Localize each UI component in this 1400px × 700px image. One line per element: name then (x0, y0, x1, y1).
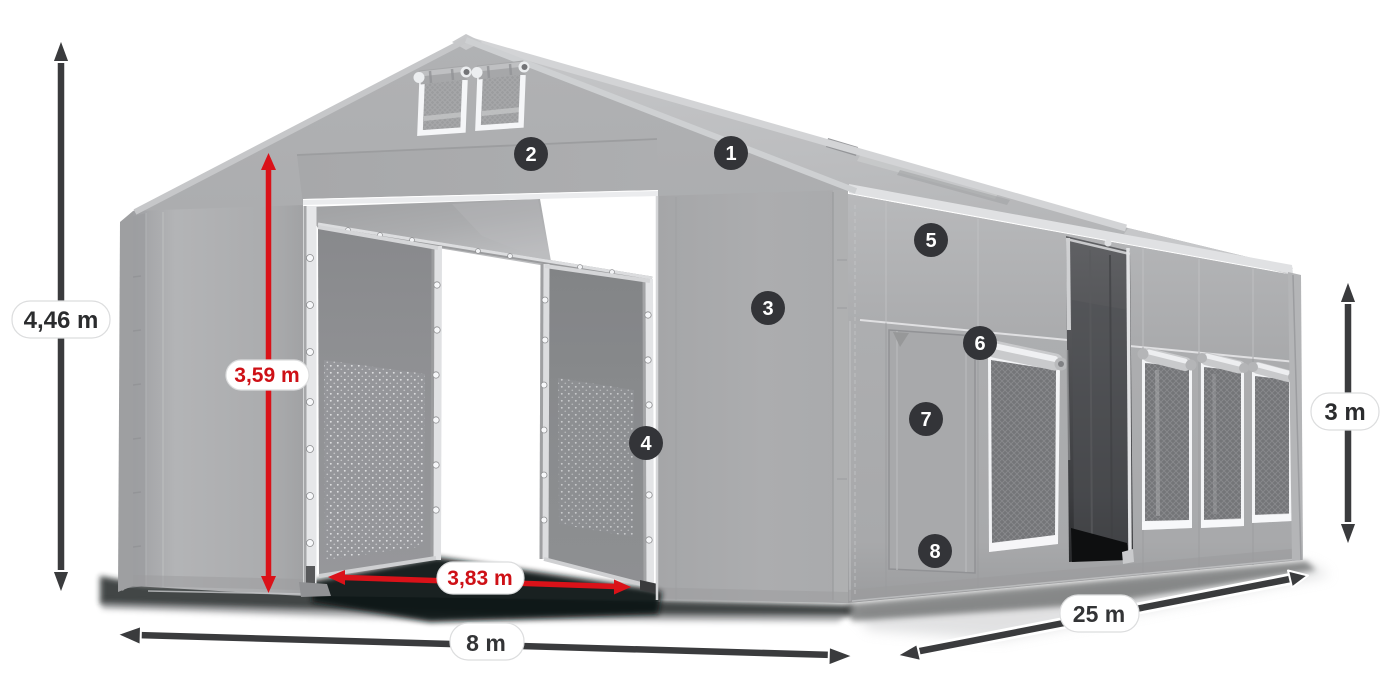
svg-text:8: 8 (929, 541, 940, 563)
svg-text:2: 2 (525, 144, 536, 166)
svg-text:4: 4 (640, 433, 652, 455)
svg-text:5: 5 (925, 230, 936, 252)
svg-text:3 m: 3 m (1324, 399, 1365, 426)
svg-text:7: 7 (920, 409, 931, 431)
svg-text:3: 3 (762, 298, 773, 320)
svg-text:3,83 m: 3,83 m (447, 567, 512, 590)
svg-text:8 m: 8 m (466, 630, 506, 656)
svg-text:1: 1 (725, 143, 736, 165)
svg-text:6: 6 (974, 333, 985, 355)
svg-text:3,59 m: 3,59 m (234, 364, 299, 387)
svg-text:25 m: 25 m (1073, 601, 1125, 627)
svg-text:4,46 m: 4,46 m (24, 307, 99, 334)
